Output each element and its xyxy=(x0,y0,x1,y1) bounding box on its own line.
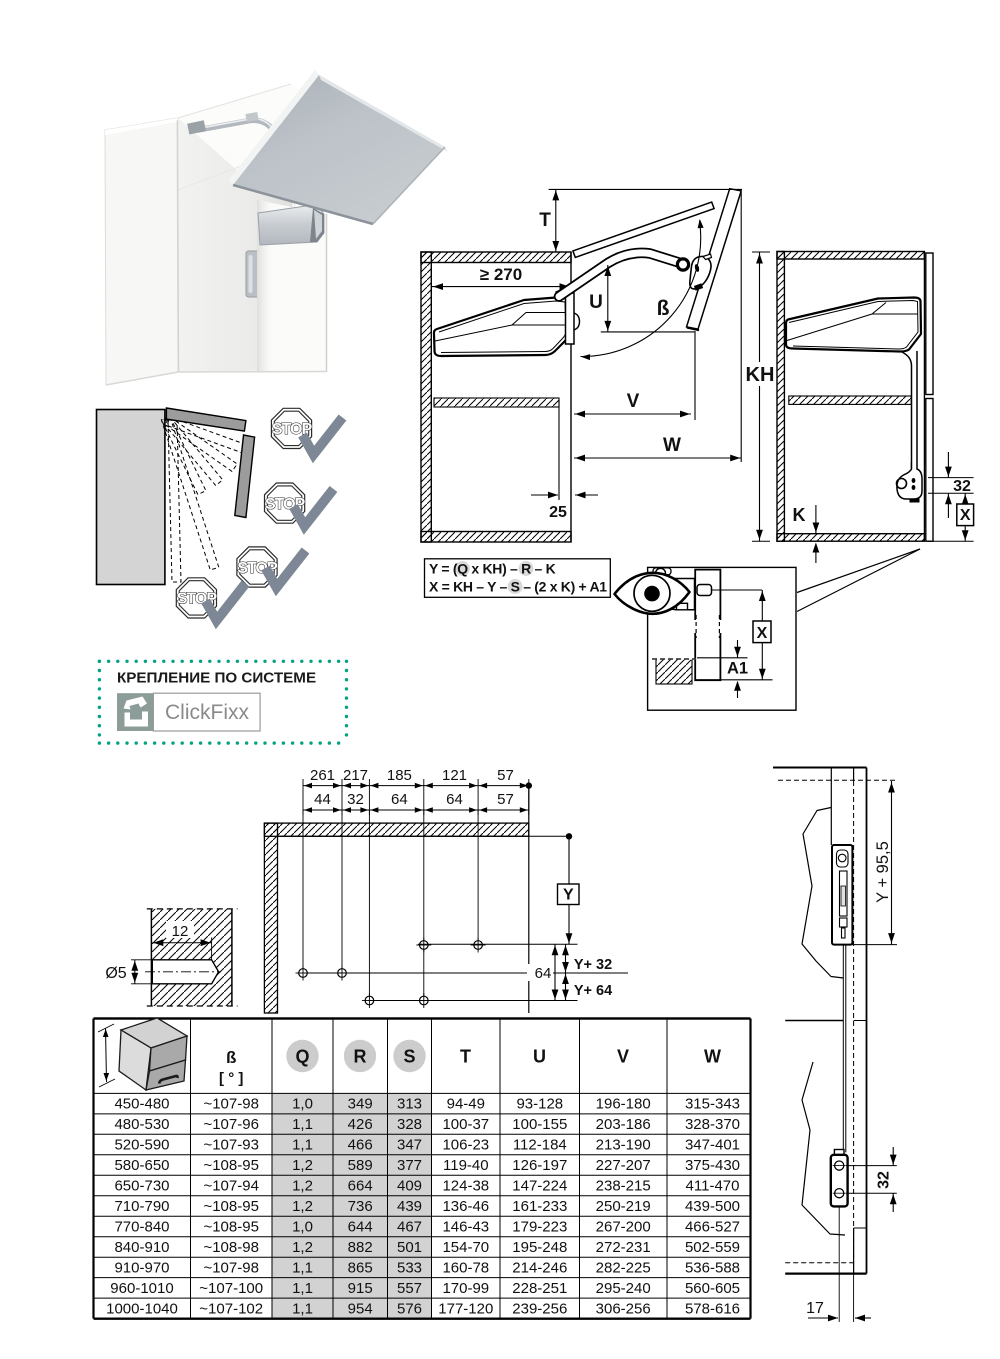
svg-text:121: 121 xyxy=(442,767,467,784)
svg-text:217: 217 xyxy=(343,767,368,784)
svg-text:239-256: 239-256 xyxy=(512,1300,567,1317)
svg-text:T: T xyxy=(539,210,551,231)
svg-text:~107-102: ~107-102 xyxy=(199,1300,263,1317)
svg-text:147-224: 147-224 xyxy=(512,1178,567,1195)
svg-text:589: 589 xyxy=(348,1157,373,1174)
svg-text:214-246: 214-246 xyxy=(512,1260,567,1277)
svg-text:12: 12 xyxy=(172,923,189,940)
svg-text:295-240: 295-240 xyxy=(596,1280,651,1297)
svg-text:100-37: 100-37 xyxy=(442,1116,489,1133)
svg-text:154-70: 154-70 xyxy=(442,1239,489,1256)
svg-text:1,2: 1,2 xyxy=(292,1157,313,1174)
svg-text:119-40: 119-40 xyxy=(443,1157,489,1174)
svg-text:349: 349 xyxy=(348,1096,373,1113)
svg-text:~107-98: ~107-98 xyxy=(203,1260,258,1277)
svg-text:K: K xyxy=(793,505,806,525)
svg-text:466: 466 xyxy=(348,1137,373,1154)
svg-text:915: 915 xyxy=(348,1280,373,1297)
svg-text:136-46: 136-46 xyxy=(442,1198,489,1215)
svg-text:480-530: 480-530 xyxy=(114,1116,169,1133)
svg-text:U: U xyxy=(533,1047,546,1067)
svg-text:179-223: 179-223 xyxy=(512,1219,567,1236)
svg-text:1,1: 1,1 xyxy=(292,1280,313,1297)
svg-text:[ ° ]: [ ° ] xyxy=(219,1070,243,1087)
svg-text:100-155: 100-155 xyxy=(512,1116,567,1133)
svg-text:Ø5: Ø5 xyxy=(105,965,126,982)
svg-text:≥ 270: ≥ 270 xyxy=(480,265,522,284)
svg-text:1,1: 1,1 xyxy=(292,1137,313,1154)
svg-text:Y = (Q x KH) – R – K: Y = (Q x KH) – R – K xyxy=(429,561,556,577)
svg-text:ß: ß xyxy=(657,297,670,320)
svg-text:377: 377 xyxy=(397,1157,422,1174)
svg-text:710-790: 710-790 xyxy=(114,1198,169,1215)
svg-text:17: 17 xyxy=(806,1300,824,1317)
svg-text:560-605: 560-605 xyxy=(685,1280,740,1297)
svg-text:124-38: 124-38 xyxy=(442,1178,489,1195)
svg-text:U: U xyxy=(589,292,603,313)
svg-text:195-248: 195-248 xyxy=(512,1239,567,1256)
svg-text:126-197: 126-197 xyxy=(512,1157,567,1174)
svg-text:409: 409 xyxy=(397,1178,422,1195)
svg-text:1,2: 1,2 xyxy=(292,1239,313,1256)
svg-text:W: W xyxy=(704,1047,721,1067)
svg-text:227-207: 227-207 xyxy=(596,1157,651,1174)
svg-text:1,1: 1,1 xyxy=(292,1300,313,1317)
svg-text:347: 347 xyxy=(397,1137,422,1154)
svg-text:1,0: 1,0 xyxy=(292,1219,313,1236)
svg-text:439: 439 xyxy=(397,1198,422,1215)
svg-text:94-49: 94-49 xyxy=(447,1096,485,1113)
svg-text:~108-95: ~108-95 xyxy=(203,1198,258,1215)
svg-text:466-527: 466-527 xyxy=(685,1219,740,1236)
svg-text:KH: KH xyxy=(746,364,775,386)
svg-text:57: 57 xyxy=(497,791,514,808)
svg-text:502-559: 502-559 xyxy=(685,1239,740,1256)
svg-text:177-120: 177-120 xyxy=(438,1300,493,1317)
svg-text:328-370: 328-370 xyxy=(685,1116,740,1133)
svg-text:536-588: 536-588 xyxy=(685,1260,740,1277)
svg-text:W: W xyxy=(663,435,681,456)
svg-text:Y+ 32: Y+ 32 xyxy=(574,957,612,973)
svg-text:1,2: 1,2 xyxy=(292,1198,313,1215)
svg-text:X: X xyxy=(757,625,768,642)
svg-text:A1: A1 xyxy=(727,660,748,678)
svg-text:250-219: 250-219 xyxy=(596,1198,651,1215)
svg-text:576: 576 xyxy=(397,1300,422,1317)
svg-text:664: 664 xyxy=(348,1178,373,1195)
svg-text:R: R xyxy=(354,1047,367,1067)
svg-text:32: 32 xyxy=(876,1171,893,1189)
svg-text:146-43: 146-43 xyxy=(442,1219,489,1236)
svg-text:~107-93: ~107-93 xyxy=(203,1137,258,1154)
svg-text:Y: Y xyxy=(563,887,574,904)
svg-text:~108-98: ~108-98 xyxy=(203,1239,258,1256)
svg-text:~107-94: ~107-94 xyxy=(203,1178,258,1195)
svg-text:Q: Q xyxy=(295,1047,309,1067)
svg-text:203-186: 203-186 xyxy=(596,1116,651,1133)
svg-text:32: 32 xyxy=(347,791,364,808)
svg-text:196-180: 196-180 xyxy=(596,1096,651,1113)
svg-text:501: 501 xyxy=(397,1239,422,1256)
svg-text:954: 954 xyxy=(348,1300,373,1317)
svg-text:93-128: 93-128 xyxy=(516,1096,563,1113)
svg-text:228-251: 228-251 xyxy=(512,1280,567,1297)
svg-text:840-910: 840-910 xyxy=(114,1239,169,1256)
svg-text:~107-98: ~107-98 xyxy=(203,1096,258,1113)
svg-text:580-650: 580-650 xyxy=(114,1157,169,1174)
svg-text:411-470: 411-470 xyxy=(686,1178,740,1195)
svg-text:1,2: 1,2 xyxy=(292,1178,313,1195)
svg-text:1,1: 1,1 xyxy=(292,1260,313,1277)
svg-text:650-730: 650-730 xyxy=(114,1178,169,1195)
svg-text:КРЕПЛЕНИЕ ПО СИСТЕМЕ: КРЕПЛЕНИЕ ПО СИСТЕМЕ xyxy=(117,670,316,687)
svg-text:ClickFixx: ClickFixx xyxy=(165,701,249,724)
svg-text:261: 261 xyxy=(310,767,335,784)
svg-text:57: 57 xyxy=(497,767,514,784)
svg-text:910-970: 910-970 xyxy=(114,1260,169,1277)
svg-text:960-1010: 960-1010 xyxy=(110,1280,173,1297)
svg-text:375-430: 375-430 xyxy=(685,1157,740,1174)
svg-text:170-99: 170-99 xyxy=(442,1280,489,1297)
svg-text:644: 644 xyxy=(348,1219,373,1236)
svg-text:882: 882 xyxy=(348,1239,373,1256)
svg-text:X = KH – Y – S – (2 x K) + A1: X = KH – Y – S – (2 x K) + A1 xyxy=(429,579,607,595)
svg-text:426: 426 xyxy=(348,1116,373,1133)
svg-text:533: 533 xyxy=(397,1260,422,1277)
svg-text:160-78: 160-78 xyxy=(442,1260,489,1277)
svg-text:1,0: 1,0 xyxy=(292,1096,313,1113)
svg-text:185: 185 xyxy=(387,767,412,784)
svg-text:450-480: 450-480 xyxy=(114,1096,169,1113)
svg-text:V: V xyxy=(627,391,640,412)
svg-text:161-233: 161-233 xyxy=(512,1198,567,1215)
svg-text:578-616: 578-616 xyxy=(685,1300,740,1317)
svg-text:106-23: 106-23 xyxy=(442,1137,489,1154)
svg-text:~107-96: ~107-96 xyxy=(203,1116,258,1133)
svg-text:Y+ 64: Y+ 64 xyxy=(574,983,612,999)
svg-text:313: 313 xyxy=(397,1096,422,1113)
svg-text:64: 64 xyxy=(446,791,463,808)
svg-text:328: 328 xyxy=(397,1116,422,1133)
svg-text:267-200: 267-200 xyxy=(596,1219,651,1236)
svg-text:315-343: 315-343 xyxy=(685,1096,740,1113)
svg-text:44: 44 xyxy=(314,791,331,808)
svg-text:S: S xyxy=(403,1047,415,1067)
svg-text:306-256: 306-256 xyxy=(596,1300,651,1317)
svg-text:736: 736 xyxy=(348,1198,373,1215)
svg-text:~108-95: ~108-95 xyxy=(203,1157,258,1174)
svg-text:ß: ß xyxy=(226,1048,236,1067)
svg-text:~108-95: ~108-95 xyxy=(203,1219,258,1236)
svg-text:520-590: 520-590 xyxy=(114,1137,169,1154)
svg-text:112-184: 112-184 xyxy=(513,1137,567,1154)
svg-text:1,1: 1,1 xyxy=(292,1116,313,1133)
svg-text:X: X xyxy=(960,507,971,524)
svg-text:Y + 95,5: Y + 95,5 xyxy=(874,841,892,903)
svg-text:467: 467 xyxy=(397,1219,422,1236)
svg-text:557: 557 xyxy=(397,1280,422,1297)
svg-text:32: 32 xyxy=(953,478,971,495)
svg-text:238-215: 238-215 xyxy=(596,1178,651,1195)
svg-text:T: T xyxy=(460,1047,471,1067)
svg-text:439-500: 439-500 xyxy=(685,1198,740,1215)
svg-text:25: 25 xyxy=(549,504,567,521)
svg-text:64: 64 xyxy=(535,965,552,982)
svg-text:770-840: 770-840 xyxy=(114,1219,169,1236)
svg-text:347-401: 347-401 xyxy=(685,1137,740,1154)
svg-text:282-225: 282-225 xyxy=(596,1260,651,1277)
svg-text:~107-100: ~107-100 xyxy=(199,1280,263,1297)
svg-text:V: V xyxy=(617,1047,629,1067)
svg-text:272-231: 272-231 xyxy=(596,1239,651,1256)
svg-text:1000-1040: 1000-1040 xyxy=(106,1300,178,1317)
svg-text:213-190: 213-190 xyxy=(596,1137,651,1154)
svg-text:865: 865 xyxy=(348,1260,373,1277)
svg-text:64: 64 xyxy=(391,791,408,808)
